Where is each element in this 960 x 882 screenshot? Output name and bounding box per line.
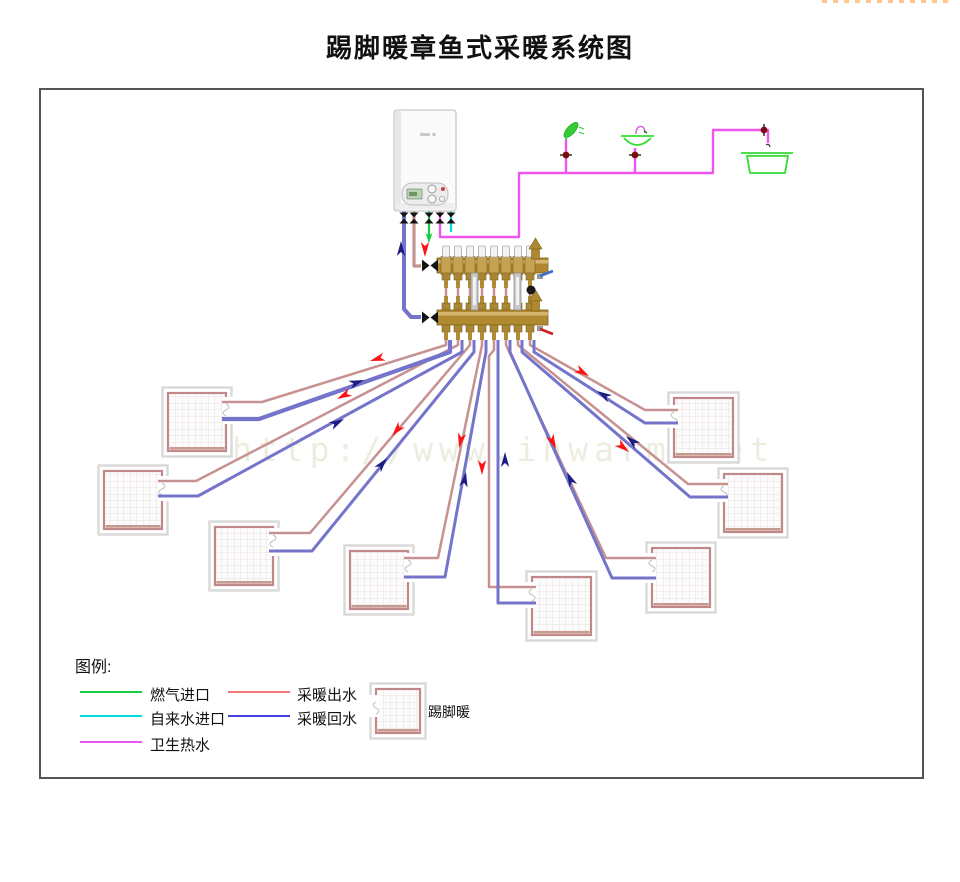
room-floor-line (534, 631, 590, 634)
manifold-cap (455, 246, 462, 257)
manifold-outlet-nut (442, 325, 450, 332)
stop-valve-icon (761, 127, 768, 134)
legend-room-symbol (368, 684, 426, 739)
room-grid (217, 529, 272, 584)
boiler-valve-icon (436, 219, 445, 224)
manifold-outlet-tube (444, 280, 448, 288)
manifold-cap (515, 246, 522, 257)
dhw-pipe-tub-drop (767, 130, 768, 143)
room-grid (106, 473, 161, 528)
room-floor-line (106, 525, 161, 528)
shower-icon (562, 120, 584, 140)
room-grid (534, 579, 590, 634)
dhw-pipe (440, 130, 761, 237)
manifold-cap (503, 246, 510, 257)
room-floor-line (352, 605, 407, 608)
boiler-valve-icon (425, 213, 434, 218)
boiler-valve-icon (436, 213, 445, 218)
supply-flow-arrow (478, 460, 486, 475)
manifold-outlet-nut (442, 273, 450, 280)
manifold-collar (453, 257, 463, 275)
manifold-inlet-nut (442, 303, 450, 310)
flow-meter-window (473, 277, 476, 305)
supply-flow-arrow (615, 439, 632, 455)
manifold-outlet-tube (480, 332, 484, 340)
room-floor-line (676, 453, 732, 456)
manifold-cap (443, 246, 450, 257)
supply-ball-valve-icon (431, 260, 439, 272)
manifold-outlet-tube (480, 280, 484, 288)
room-floor-line (170, 447, 225, 450)
room (163, 388, 235, 457)
room-floor-line (217, 581, 272, 584)
boiler-valve-icon (447, 213, 456, 218)
manifold-outlet-tube (492, 280, 496, 288)
sink-icon (621, 126, 654, 145)
manifold-outlet-tube (516, 332, 520, 340)
room-grid (654, 550, 709, 606)
boiler-supply-pipe (414, 211, 421, 266)
manifold-inlet-nut (478, 303, 486, 310)
manifold-outlet-tube (492, 332, 496, 340)
room-grid (170, 395, 225, 450)
stop-valve-icon (563, 152, 570, 159)
room-grid (352, 553, 407, 608)
manifold-outlet-tube (456, 280, 460, 288)
manifold-outlet-nut (454, 325, 462, 332)
manifold-outlet-tube (468, 332, 472, 340)
manifold-outlet-nut (478, 273, 486, 280)
manifold-outlet-tube (528, 332, 532, 340)
boiler-valve-icon (400, 219, 409, 224)
air-vent-icon (529, 238, 542, 249)
manifold-outlet-nut (526, 273, 534, 280)
manifold-outlet-tube (504, 280, 508, 288)
manifold-inlet-nut (454, 303, 462, 310)
supply-pipe (222, 287, 446, 402)
room (345, 546, 417, 615)
boiler-valve-icon (400, 213, 409, 218)
room (666, 393, 739, 463)
manifold-outlet-nut (502, 325, 510, 332)
manifold-cap (479, 246, 486, 257)
manifold-inlet-nut (490, 303, 498, 310)
manifold-outlet-tube (504, 332, 508, 340)
boiler-valve-icon (410, 213, 419, 218)
boiler-valve-icon (425, 219, 434, 224)
supply-ball-valve-icon (422, 260, 430, 272)
manifold-outlet-nut (490, 325, 498, 332)
room (99, 466, 171, 535)
bathtub-icon (741, 144, 793, 173)
manifold-outlet-nut (502, 273, 510, 280)
boiler-logo (420, 133, 436, 136)
manifold-outlet-nut (454, 273, 462, 280)
room-grid (726, 476, 781, 531)
manifold-collar (465, 257, 475, 275)
manifold-outlet-nut (466, 325, 474, 332)
manifold-collar (441, 257, 451, 275)
red-drain-valve-handle (540, 329, 553, 334)
flow-meter-window (516, 277, 519, 305)
room-floor-line (726, 528, 781, 531)
return-ball-valve-icon (431, 312, 439, 324)
boiler-valve-icon (410, 219, 419, 224)
room-pipe-notch (368, 695, 380, 717)
room-grid (378, 691, 419, 732)
room (716, 469, 788, 538)
boiler-valve-icon (447, 219, 456, 224)
manifold-outlet-nut (478, 325, 486, 332)
boiler-control-panel (402, 183, 448, 205)
return-flow-arrow (501, 452, 509, 467)
supply-pipe (530, 287, 678, 410)
room-floor-line (654, 603, 709, 606)
return-ball-valve-icon (422, 312, 430, 324)
manifold-outlet-tube (456, 332, 460, 340)
supply-flow-arrow (369, 353, 386, 365)
manifold-cap (467, 246, 474, 257)
manifold-collar (513, 257, 523, 275)
manifold-outlet-nut (514, 325, 522, 332)
air-vent-icon (532, 301, 540, 311)
manifold-outlet-tube (444, 332, 448, 340)
air-vent-icon (532, 249, 540, 259)
thermometer-knob-icon (527, 286, 536, 295)
room (524, 572, 597, 641)
manifold-outlet-nut (490, 273, 498, 280)
boiler (394, 110, 456, 211)
manifold-cap (491, 246, 498, 257)
room-floor-line (378, 729, 419, 732)
manifold-outlet-nut (526, 325, 534, 332)
room-grid (676, 400, 732, 456)
stop-valve-icon (632, 152, 639, 159)
manifold-highlight (437, 312, 548, 316)
return-pipe (269, 340, 474, 551)
manifold-collar (489, 257, 499, 275)
manifold-collar (477, 257, 487, 275)
manifold-collar (501, 257, 511, 275)
supply-flow-arrow (421, 242, 429, 257)
system-diagram (0, 0, 960, 882)
return-pipe (498, 340, 536, 603)
manifold-inlet-nut (502, 303, 510, 310)
